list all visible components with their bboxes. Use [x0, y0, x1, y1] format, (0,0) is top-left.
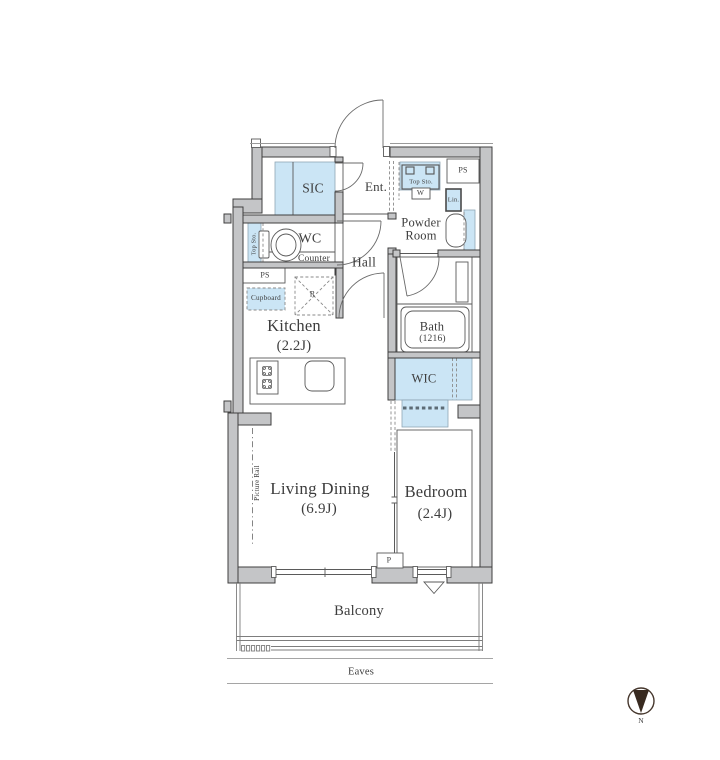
label-compass-north: N [638, 716, 644, 724]
kitchen-sink [305, 361, 334, 391]
label-living-size: (6.9J) [301, 500, 337, 516]
label-bath-name: Bath [420, 320, 444, 334]
bath-door [400, 257, 439, 296]
label-sic: SIC [302, 182, 324, 197]
doors [335, 100, 439, 318]
label-refrigerator: R [310, 291, 316, 300]
hall-kitchen-door [339, 273, 384, 318]
label-living-name: Living Dining [270, 479, 369, 497]
label-hall: Hall [352, 256, 376, 271]
label-cupboard: Cupboard [251, 295, 281, 303]
compass-icon [628, 688, 654, 714]
laundry-area [400, 162, 440, 190]
label-balcony: Balcony [334, 604, 384, 620]
entrance-door [335, 100, 383, 148]
sic-door [335, 163, 363, 191]
label-washer: W [417, 189, 424, 197]
wic-area-lower [402, 400, 448, 427]
label-picture-rail: Picture Rail [254, 465, 262, 501]
label-eaves: Eaves [348, 666, 374, 677]
toilet [259, 229, 301, 261]
label-kitchen-size: (2.2J) [277, 339, 312, 355]
label-bedroom-name: Bedroom [405, 483, 468, 501]
label-ps-upper: PS [458, 167, 467, 176]
label-pillar: P [387, 556, 392, 565]
floor-plan-drawing [0, 0, 720, 760]
label-kitchen-name: Kitchen [267, 317, 321, 335]
label-entrance: Ent. [365, 180, 387, 194]
label-laundry-top-storage: Top Sto. [409, 178, 433, 185]
label-powder-room: Powder Room [389, 216, 453, 243]
entrance-jamb-right [384, 147, 390, 157]
stove [257, 361, 278, 394]
label-wc: WC [299, 231, 322, 246]
kitchen-counter [250, 358, 345, 404]
label-wc-counter: Counter [298, 254, 330, 264]
label-linen: Lin. [448, 196, 459, 203]
label-wic: WIC [412, 372, 437, 386]
label-bedroom-size: (2.4J) [418, 507, 453, 523]
label-wc-top-storage: Top Sto. [251, 233, 258, 255]
casement-window-symbol [424, 582, 444, 594]
floor-plan: SIC Ent. WC Counter Hall Top Sto. Top St… [0, 0, 720, 760]
label-ps-kitchen: PS [260, 272, 269, 281]
label-bath-size: (1216) [419, 334, 446, 344]
